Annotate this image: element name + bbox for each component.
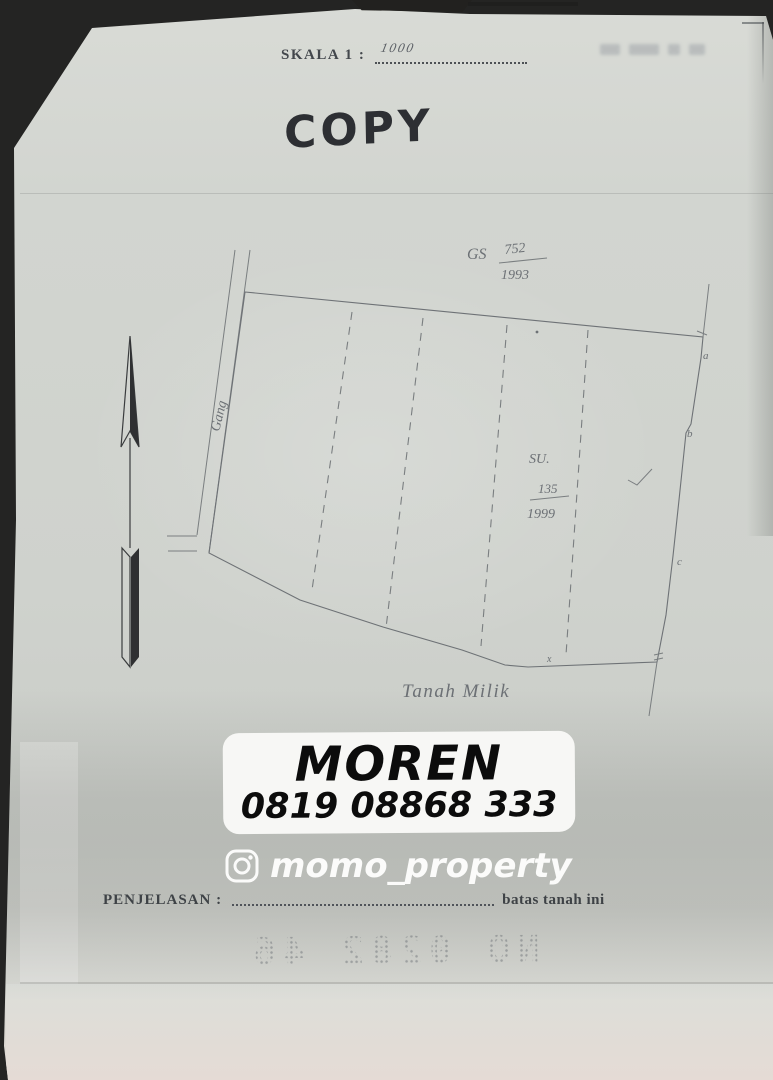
instagram-handle: momo_property	[270, 846, 572, 886]
road-label: Gang	[208, 399, 230, 433]
road-lines	[167, 250, 250, 553]
watermark-box: MOREN 0819 08868 333	[223, 731, 576, 834]
check-mark	[628, 469, 652, 485]
gs-numerator: 752	[504, 241, 526, 258]
boundary-letter-c: c	[677, 556, 682, 568]
gs-label: GS	[467, 246, 487, 263]
penjelasan-label: PENJELASAN :	[103, 892, 222, 909]
background-notch	[352, 0, 472, 12]
document-photo: SKALA 1 : 1000 COPY	[0, 0, 773, 1080]
su-denominator: 1999	[527, 507, 555, 522]
perforated-number: NO 0282 46	[233, 923, 553, 978]
phone-number: 0819 08868 333	[241, 787, 558, 826]
su-numerator: 135	[538, 481, 558, 496]
north-arrow-icon	[121, 336, 139, 667]
paper-sheet: SKALA 1 : 1000 COPY	[0, 0, 773, 1080]
boundary-letter-b: b	[687, 428, 693, 440]
penjelasan-dotted-line	[232, 892, 494, 906]
gs-denominator: 1993	[501, 268, 529, 283]
land-label: Tanah Milik	[402, 681, 510, 702]
map-annotations: GS 752 1993 SU. 135 1999 Gang Tanah Mili…	[208, 241, 709, 702]
junction-mark: x	[546, 654, 552, 665]
survey-map: GS 752 1993 SU. 135 1999 Gang Tanah Mili…	[0, 0, 773, 1080]
su-label: SU.	[529, 452, 550, 467]
instagram-icon	[224, 848, 260, 884]
penjelasan-suffix: batas tanah ini	[502, 892, 605, 909]
boundary-letter-a: a	[703, 350, 709, 362]
brand-name: MOREN	[294, 739, 503, 788]
survey-dot	[536, 331, 539, 334]
background-sliver	[468, 2, 578, 6]
instagram-row: momo_property	[224, 840, 584, 892]
penjelasan-row: PENJELASAN : batas tanah ini	[103, 892, 605, 909]
parcel-boundary	[209, 292, 703, 667]
